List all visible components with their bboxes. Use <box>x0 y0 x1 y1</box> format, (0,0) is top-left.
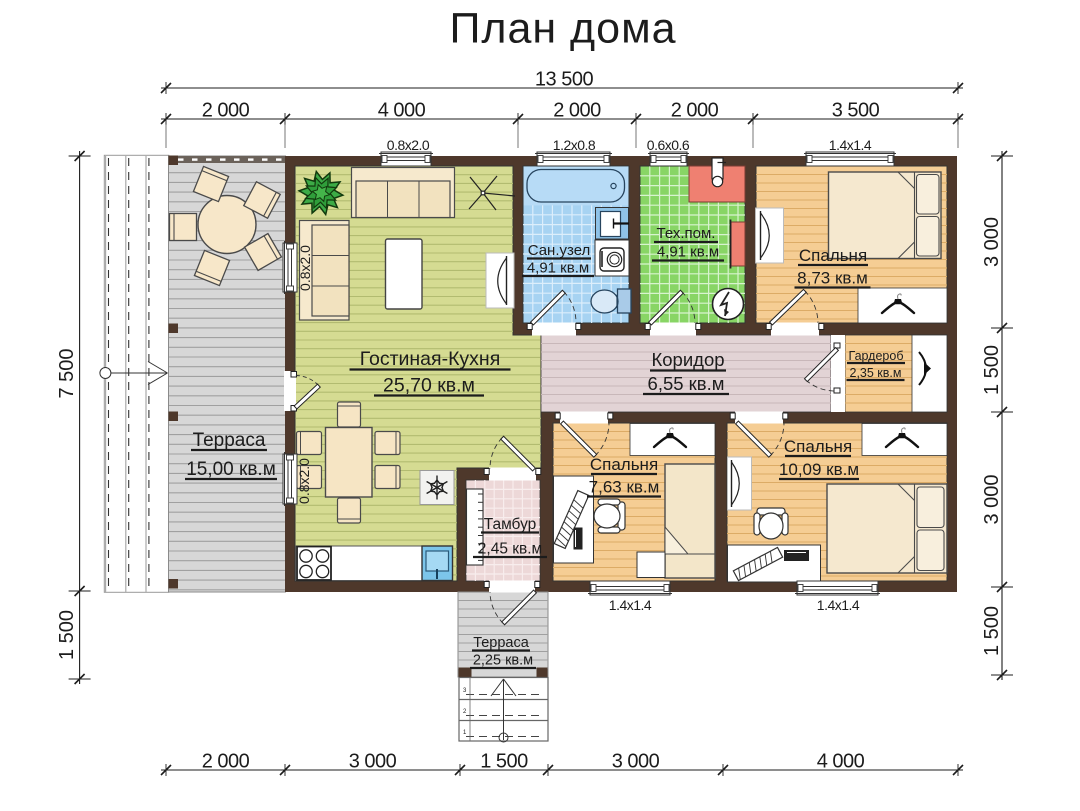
svg-text:Терраса: Терраса <box>473 635 530 651</box>
svg-text:4,91 кв.м: 4,91 кв.м <box>527 260 589 277</box>
svg-text:1 500: 1 500 <box>981 345 1003 395</box>
svg-text:1.4x1.4: 1.4x1.4 <box>829 137 872 153</box>
svg-text:3 000: 3 000 <box>612 751 660 773</box>
svg-text:3 000: 3 000 <box>981 474 1003 524</box>
svg-text:2,35 кв.м: 2,35 кв.м <box>850 366 902 380</box>
svg-text:1.2x0.8: 1.2x0.8 <box>553 137 596 153</box>
svg-text:4 000: 4 000 <box>378 100 426 122</box>
svg-text:Тамбур: Тамбур <box>484 516 537 533</box>
svg-text:План дома: План дома <box>449 5 676 53</box>
svg-text:10,09 кв.м: 10,09 кв.м <box>779 460 859 479</box>
svg-text:2 000: 2 000 <box>202 100 250 122</box>
svg-text:3 000: 3 000 <box>981 217 1003 267</box>
svg-text:Спальня: Спальня <box>799 246 867 265</box>
svg-text:7 500: 7 500 <box>56 348 78 398</box>
svg-text:Тех.пом.: Тех.пом. <box>657 225 716 242</box>
svg-text:Сан.узел: Сан.узел <box>528 242 591 259</box>
svg-text:4 000: 4 000 <box>817 751 865 773</box>
svg-text:1.4x1.4: 1.4x1.4 <box>817 597 860 613</box>
svg-text:13 500: 13 500 <box>535 69 594 91</box>
svg-text:2 000: 2 000 <box>553 100 601 122</box>
svg-text:1 500: 1 500 <box>981 606 1003 656</box>
svg-text:3 500: 3 500 <box>832 100 880 122</box>
svg-text:Гостиная-Кухня: Гостиная-Кухня <box>360 348 501 370</box>
svg-text:1.4x1.4: 1.4x1.4 <box>609 597 652 613</box>
svg-text:1 500: 1 500 <box>480 751 528 773</box>
svg-text:4,91 кв.м: 4,91 кв.м <box>657 244 719 261</box>
svg-text:2 000: 2 000 <box>202 751 250 773</box>
svg-text:2,45 кв.м: 2,45 кв.м <box>478 541 542 558</box>
svg-text:Коридор: Коридор <box>651 349 724 370</box>
svg-text:Спальня: Спальня <box>784 437 852 456</box>
svg-text:2,25 кв.м: 2,25 кв.м <box>473 653 533 669</box>
svg-text:15,00 кв.м: 15,00 кв.м <box>186 459 276 480</box>
svg-text:0.8x2.0: 0.8x2.0 <box>296 458 312 504</box>
svg-text:1 500: 1 500 <box>56 610 78 660</box>
svg-text:0.8x2.0: 0.8x2.0 <box>387 137 430 153</box>
svg-text:7,63 кв.м: 7,63 кв.м <box>589 478 660 497</box>
svg-text:8,73 кв.м: 8,73 кв.м <box>797 269 868 288</box>
svg-text:25,70 кв.м: 25,70 кв.м <box>383 375 475 397</box>
svg-text:Гардероб: Гардероб <box>849 349 904 363</box>
svg-text:0.6x0.6: 0.6x0.6 <box>647 137 690 153</box>
svg-text:2 000: 2 000 <box>671 100 719 122</box>
svg-text:Спальня: Спальня <box>590 455 658 474</box>
svg-text:6,55 кв.м: 6,55 кв.м <box>648 373 725 394</box>
svg-text:0.8x2.0: 0.8x2.0 <box>297 245 313 291</box>
svg-text:3 000: 3 000 <box>349 751 397 773</box>
svg-text:Терраса: Терраса <box>193 430 266 451</box>
